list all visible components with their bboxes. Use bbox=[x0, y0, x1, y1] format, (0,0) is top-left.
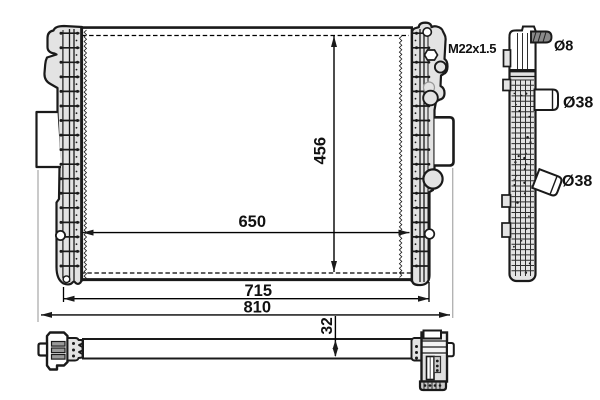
svg-text:Ø38: Ø38 bbox=[562, 173, 592, 190]
svg-text:456: 456 bbox=[312, 137, 330, 165]
svg-text:810: 810 bbox=[244, 299, 272, 317]
svg-text:Ø38: Ø38 bbox=[563, 95, 593, 112]
svg-text:650: 650 bbox=[239, 213, 267, 231]
svg-text:Ø8: Ø8 bbox=[554, 39, 573, 55]
svg-text:M22x1.5: M22x1.5 bbox=[448, 41, 496, 56]
svg-text:715: 715 bbox=[245, 282, 273, 300]
svg-text:32: 32 bbox=[319, 317, 336, 334]
